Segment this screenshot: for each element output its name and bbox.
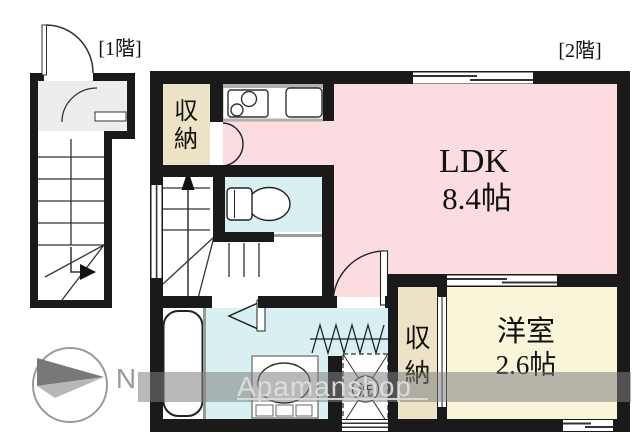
entry-floor <box>38 81 127 131</box>
ldk-room-kitchen-strip <box>223 121 334 165</box>
watermark-text: Apamanshop <box>237 371 412 402</box>
watermark-underline <box>237 398 428 400</box>
closet-upper-label-char1: 収 <box>174 98 198 125</box>
closet-lower-label-char1: 収 <box>404 324 430 353</box>
second-floor-label: [2階] <box>558 39 601 62</box>
ldk-room-lower-strip <box>334 276 388 297</box>
sliding-door-ldk-western-room <box>447 276 557 286</box>
window-left-stairs <box>152 185 162 278</box>
kitchen-counter <box>223 84 323 121</box>
ldk-room-name: LDK <box>439 143 509 180</box>
closet-upper-label-char2: 納 <box>174 126 198 153</box>
ldk-room-size: 8.4帖 <box>442 181 512 216</box>
floor-plan-drawing: [1階] [2階] <box>0 0 640 441</box>
window-bottom-laundry <box>342 420 388 431</box>
north-label: N <box>116 363 136 394</box>
window-bottom-western-room <box>563 420 613 431</box>
window-top-ldk <box>413 73 533 84</box>
bifold-doorway-gap <box>210 122 223 165</box>
first-floor-label: [1階] <box>98 37 141 60</box>
bath-washroom-divider <box>203 308 206 419</box>
sink-icon <box>286 88 322 117</box>
floor-plan-page: [1階] [2階] <box>0 0 640 441</box>
stove-burners-icon <box>228 90 268 117</box>
watermark: Apamanshop <box>138 371 631 402</box>
ldk-room <box>334 84 617 276</box>
western-room-name: 洋室 <box>497 315 555 348</box>
toilet-icon <box>227 188 290 221</box>
toilet-door-line <box>274 234 322 237</box>
